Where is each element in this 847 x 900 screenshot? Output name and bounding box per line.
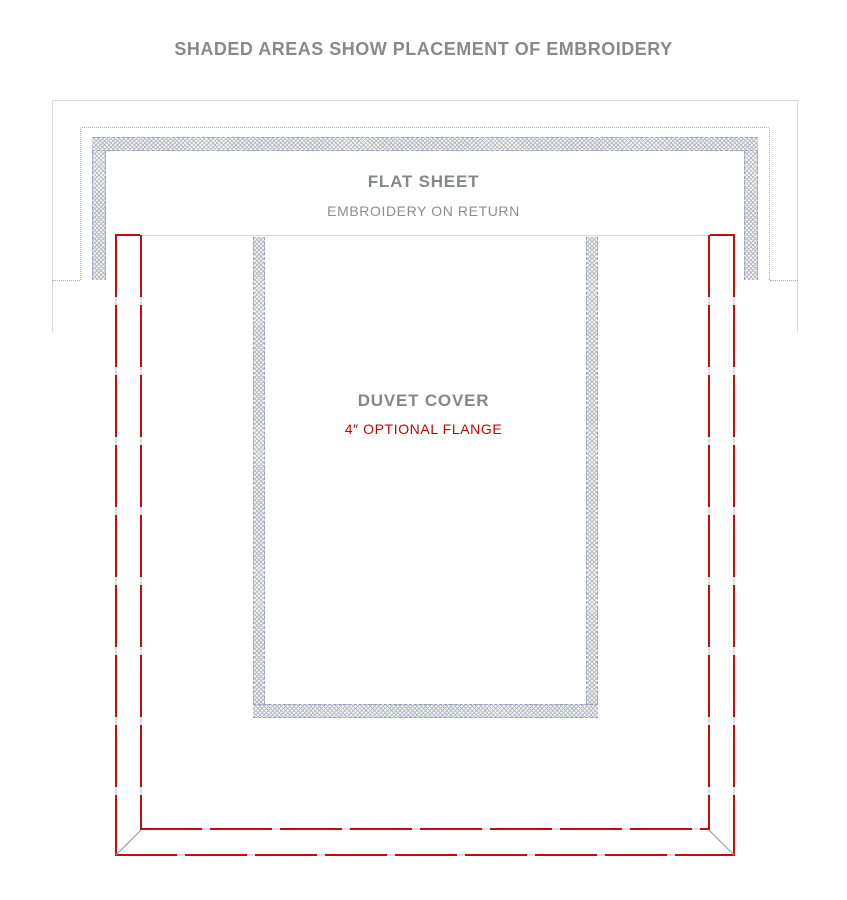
duvet-embroidery-band-right — [586, 237, 598, 704]
embroidery-placement-diagram: SHADED AREAS SHOW PLACEMENT OF EMBROIDER… — [0, 0, 847, 900]
duvet-flange-cap-left — [115, 234, 140, 236]
duvet-embroidery-band-bottom — [253, 704, 598, 718]
duvet-flange-seam-bottom — [140, 828, 710, 830]
duvet-top-edge — [115, 235, 735, 236]
duvet-label: DUVET COVER — [0, 391, 847, 411]
duvet-embroidery-band-left — [253, 237, 265, 704]
flat-sheet-fold-foot-right — [770, 280, 798, 281]
flat-sheet-embroidery-band-top — [92, 137, 758, 151]
duvet-flange-label: 4″ OPTIONAL FLANGE — [0, 421, 847, 437]
duvet-flange-seam-right — [708, 235, 710, 830]
flat-sheet-label: FLAT SHEET — [0, 172, 847, 192]
duvet-flange-seam-left — [140, 235, 142, 830]
flat-sheet-fold-foot-left — [52, 280, 80, 281]
duvet-outer-edge-bottom — [115, 854, 735, 856]
diagram-title: SHADED AREAS SHOW PLACEMENT OF EMBROIDER… — [0, 39, 847, 60]
duvet-outer-edge-left — [115, 235, 117, 856]
flat-sheet-sublabel: EMBROIDERY ON RETURN — [0, 203, 847, 219]
duvet-flange-cap-right — [710, 234, 735, 236]
duvet-outer-edge-right — [733, 235, 735, 856]
